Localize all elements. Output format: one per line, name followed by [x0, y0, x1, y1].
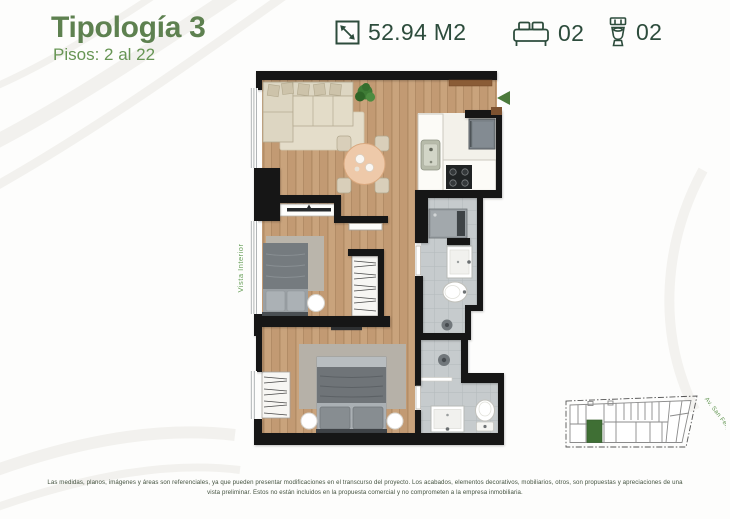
- bedrooms-value: 02: [558, 20, 584, 47]
- bedroom-1-door-leaf: [349, 224, 382, 231]
- shower-glass: [421, 378, 452, 382]
- spec-bathrooms: 02: [607, 16, 662, 48]
- bathroom-2-toilet: [476, 400, 495, 431]
- bedroom-2-closet: [262, 372, 290, 418]
- vista-interior-label: Vista Interior: [236, 244, 245, 293]
- spec-bedrooms: 02: [511, 19, 584, 48]
- bedroom-2-bed: [316, 357, 387, 434]
- window-living: [250, 88, 258, 168]
- page-subtitle: Pisos: 2 al 22: [53, 45, 155, 65]
- window-bedroom-1: [250, 221, 258, 314]
- washing-machine: [429, 209, 467, 238]
- bathroom-1-toilet: [443, 282, 467, 302]
- shower-drain-2: [438, 354, 450, 366]
- bathroom-2-door-leaf: [416, 386, 421, 409]
- bedroom-1-pouf: [308, 295, 325, 312]
- entry-door-jamb: [491, 107, 502, 115]
- nightstand-left: [301, 413, 317, 429]
- disclaimer-line-1: Las medidas, planos, imágenes y áreas so…: [0, 478, 730, 488]
- entry-door-leaf: [449, 80, 492, 86]
- spec-area: 52.94 M2: [334, 19, 466, 46]
- brochure-page: Tipología 3 Pisos: 2 al 22 52.94 M2 02: [0, 0, 730, 519]
- toilet-icon: [607, 16, 629, 48]
- nightstand-right: [387, 413, 403, 429]
- bedroom-1-closet: [352, 256, 378, 316]
- entry-arrow-icon: [497, 91, 510, 105]
- area-diagonal-arrow-icon: [334, 19, 361, 46]
- page-title: Tipología 3: [51, 11, 206, 45]
- tv-console: [280, 204, 338, 216]
- window-bedroom-2: [250, 371, 257, 419]
- dining-set: [337, 136, 389, 193]
- bathroom-1-sink: [447, 246, 472, 278]
- shower-drain-1: [442, 320, 453, 331]
- stove: [446, 165, 472, 189]
- bedroom-2-door-leaf: [331, 327, 362, 330]
- keyplan-highlighted-unit: [587, 420, 602, 443]
- fridge: [469, 119, 495, 149]
- bedroom-1-bed: [262, 243, 308, 317]
- disclaimer: Las medidas, planos, imágenes y áreas so…: [0, 478, 730, 497]
- keyplan: Av. San Felipe: [558, 386, 726, 458]
- bathrooms-value: 02: [636, 19, 662, 46]
- bed-icon: [511, 19, 551, 48]
- bathroom-1-door-leaf: [416, 246, 421, 275]
- area-value: 52.94 M2: [368, 19, 466, 46]
- street-label: Av. San Felipe: [703, 396, 726, 435]
- disclaimer-line-2: vista preliminar. Estos no están incluid…: [0, 488, 730, 498]
- kitchen-sink: [421, 140, 440, 170]
- floorplan: Vista Interior: [230, 66, 522, 466]
- bathroom-2-sink: [431, 406, 464, 432]
